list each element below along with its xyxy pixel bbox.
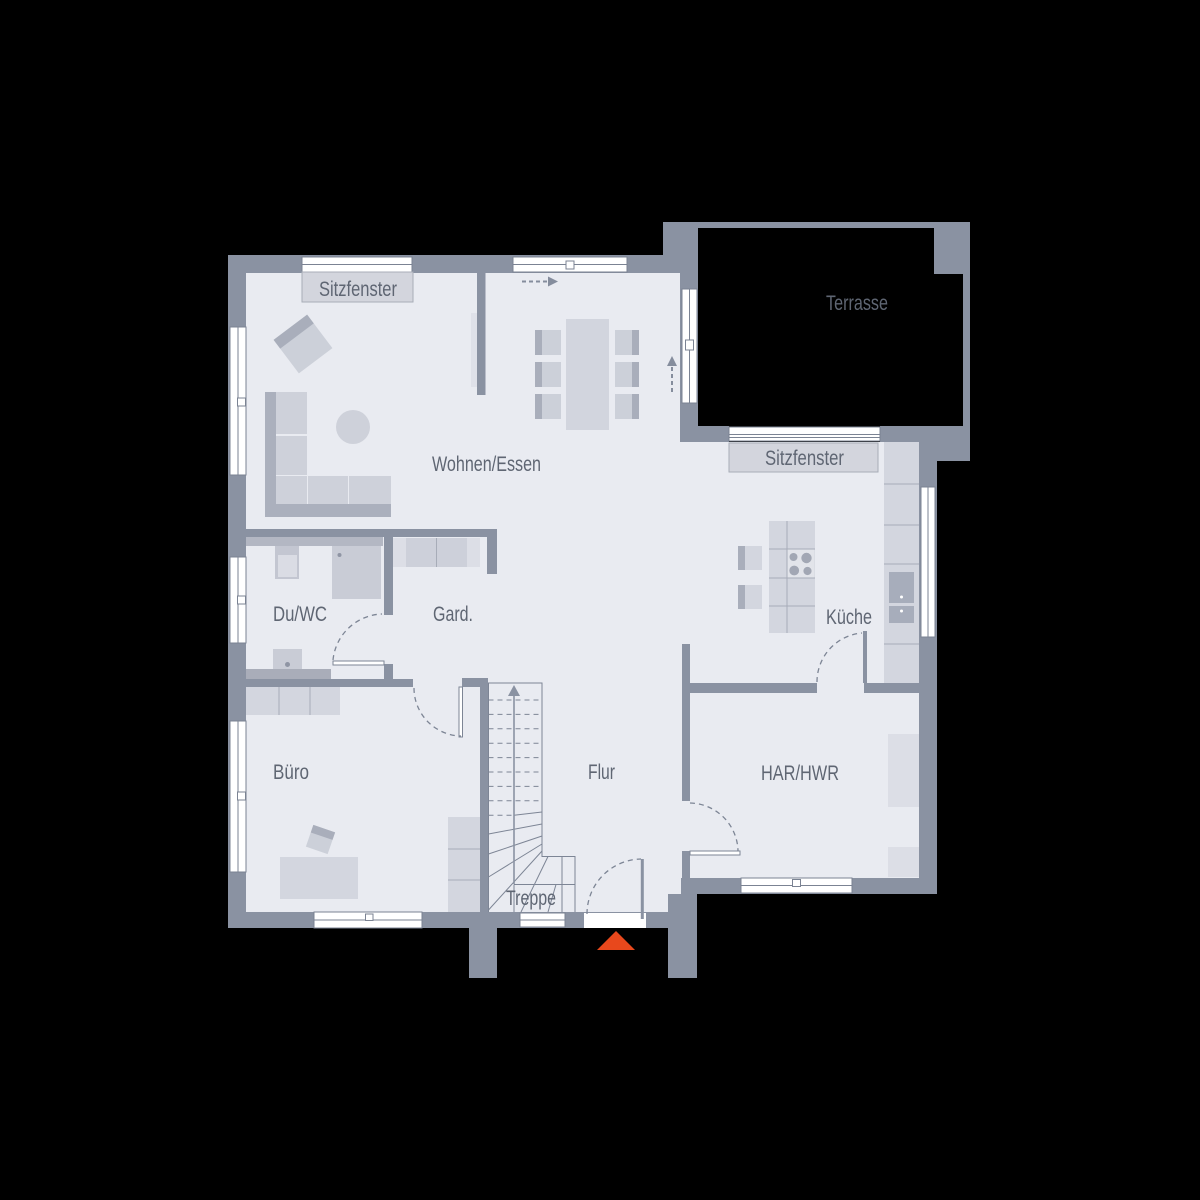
svg-text:Wohnen/Essen: Wohnen/Essen <box>432 453 541 476</box>
svg-text:Du/WC: Du/WC <box>273 603 327 626</box>
svg-text:Gard.: Gard. <box>433 603 473 626</box>
svg-text:Büro: Büro <box>273 761 309 784</box>
svg-text:HAR/HWR: HAR/HWR <box>761 762 839 785</box>
svg-text:Küche: Küche <box>826 606 872 629</box>
svg-text:Terrasse: Terrasse <box>826 292 888 315</box>
svg-text:Sitzfenster: Sitzfenster <box>765 447 844 470</box>
svg-text:Treppe: Treppe <box>506 887 556 910</box>
svg-text:Sitzfenster: Sitzfenster <box>319 278 397 301</box>
svg-text:Flur: Flur <box>588 761 615 784</box>
